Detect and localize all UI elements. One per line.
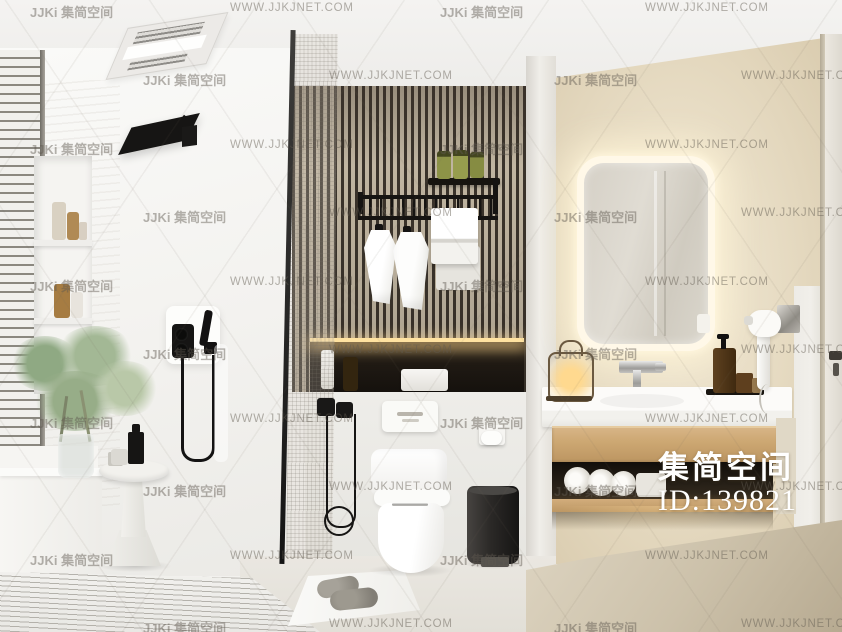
folded-towel-stack xyxy=(636,473,666,495)
niche-divider xyxy=(34,240,92,246)
toilet-paper-roll xyxy=(481,431,502,445)
sink-outline xyxy=(600,394,684,408)
door xyxy=(825,34,842,584)
under-cabinet-glow xyxy=(560,506,765,530)
amber-bottle xyxy=(343,357,358,391)
stool-stem xyxy=(121,479,146,537)
flush-plate xyxy=(382,401,438,432)
amber-bottle xyxy=(67,212,79,240)
flush-label xyxy=(402,419,419,422)
mirror-defogger-pad xyxy=(697,314,710,333)
candle-lantern xyxy=(548,352,594,402)
shower-arm-wall-box xyxy=(182,125,197,147)
small-jar xyxy=(79,222,87,240)
vanity-drawer xyxy=(552,426,778,464)
pump-stem xyxy=(721,338,726,349)
dispenser-pump xyxy=(132,424,140,433)
vanity-open-shelf xyxy=(552,462,773,501)
bin-pedal xyxy=(481,557,509,567)
faucet-handle xyxy=(655,363,666,371)
glass-vase xyxy=(58,434,94,478)
bidet-hose-coil xyxy=(324,506,354,536)
white-bottle xyxy=(71,292,83,318)
green-bottle xyxy=(437,151,451,179)
flush-buttons xyxy=(397,412,423,416)
hairdryer-nozzle xyxy=(744,316,753,325)
cabinet-side-panel xyxy=(776,418,796,514)
pump-head xyxy=(717,334,729,339)
folded-towel xyxy=(431,208,478,264)
soap-dispenser xyxy=(128,432,144,464)
bathroom-render-image: JJKi 集简空间WWW.JJKJNET.COMJJKi 集简空间WWW.JJK… xyxy=(0,0,842,632)
rolled-towel xyxy=(611,471,636,496)
amber-pump-bottle xyxy=(713,348,736,393)
valve-knob xyxy=(175,328,188,341)
trash-bin xyxy=(467,486,519,564)
door-lock xyxy=(833,363,839,376)
tissue-box xyxy=(401,369,448,391)
shower-hose xyxy=(181,355,215,462)
amber-jar xyxy=(736,373,753,393)
lantern-base xyxy=(546,396,592,401)
lantern-handle xyxy=(559,340,583,356)
toilet-bowl xyxy=(378,503,444,573)
rack-post xyxy=(358,192,363,214)
niche-divider xyxy=(34,318,92,324)
glass-bottle xyxy=(52,202,66,240)
slide-bar-glass xyxy=(214,344,228,462)
led-mirror xyxy=(577,156,715,351)
door-handle xyxy=(829,351,842,360)
rack-post xyxy=(493,178,498,214)
seat-hinge xyxy=(392,503,428,506)
amber-jar xyxy=(54,284,70,318)
small-jars xyxy=(111,449,128,465)
rolled-towel xyxy=(564,467,591,494)
green-bottle xyxy=(453,150,468,179)
toilet-niche xyxy=(310,338,524,392)
hairdryer-body xyxy=(748,310,781,337)
mirror-glass xyxy=(584,163,708,344)
rack-shelf xyxy=(428,178,500,185)
hairdryer-cord xyxy=(759,384,777,414)
green-bottle xyxy=(470,152,484,178)
